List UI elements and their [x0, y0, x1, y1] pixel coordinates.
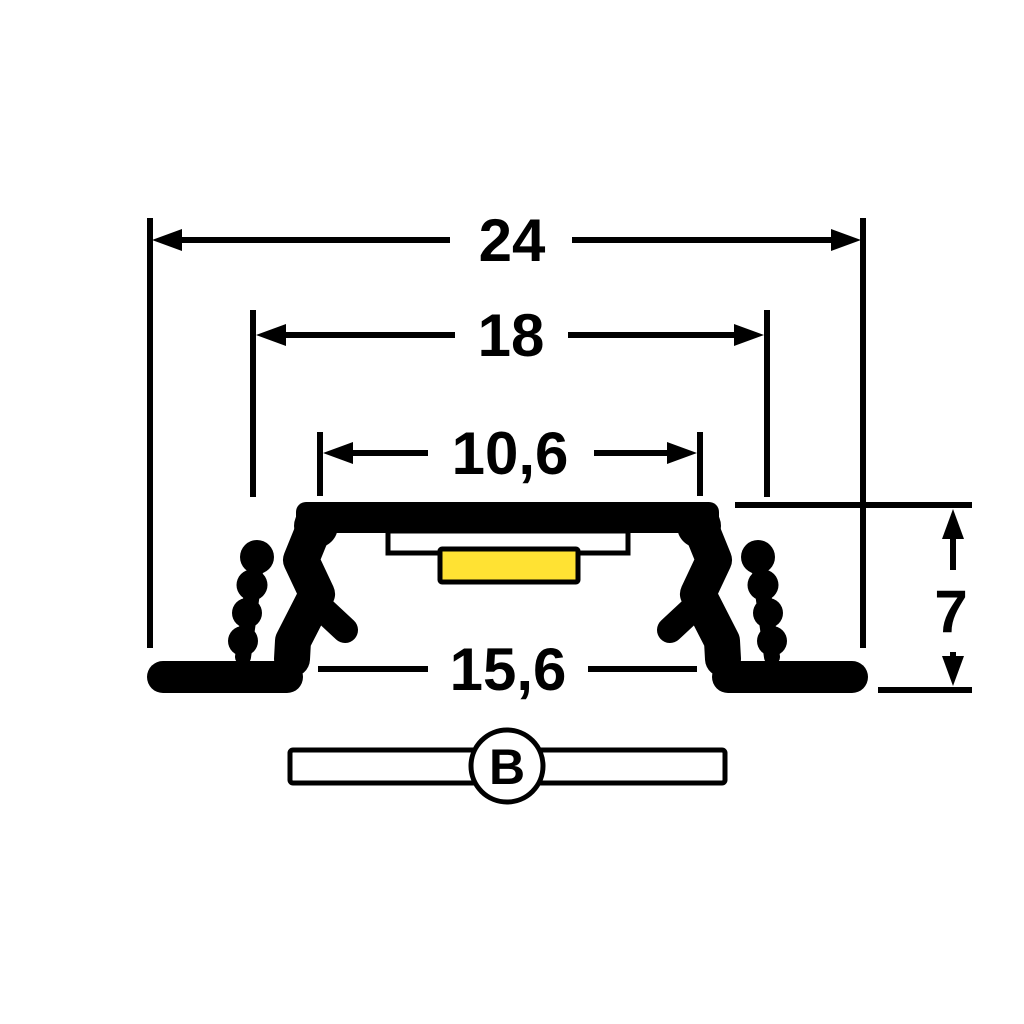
dimension-label-156: 15,6 [450, 636, 567, 703]
dimension-label-24: 24 [479, 207, 546, 274]
profile-top-bar [296, 502, 719, 533]
section-marker-letter: B [489, 739, 525, 795]
led-strip [440, 549, 578, 582]
dimension-label-7: 7 [934, 578, 967, 645]
dimension-label-18: 18 [478, 302, 545, 369]
profile-cross-section-drawing: 24 18 10,6 7 15,6 [0, 0, 1024, 1024]
dimension-label-106: 10,6 [452, 420, 569, 487]
technical-drawing: 24 18 10,6 7 15,6 [0, 0, 1024, 1024]
